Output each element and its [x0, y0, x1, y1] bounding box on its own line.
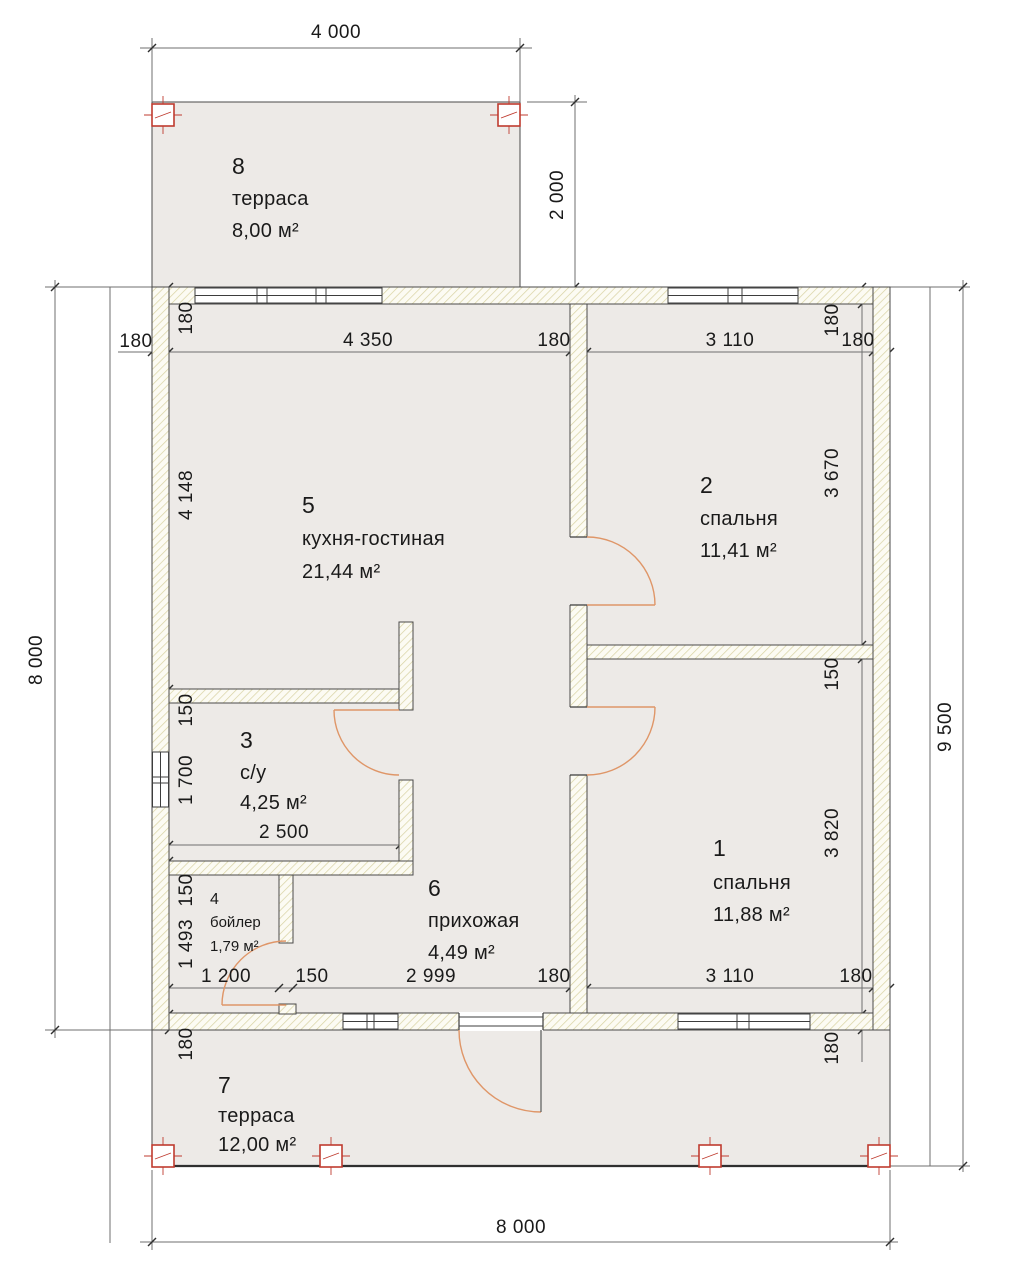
dim-terrace-top-width: 4 000 [311, 22, 361, 43]
room-name: прихожая [428, 910, 520, 932]
room-number: 2 [700, 472, 713, 498]
opening-entrance-door [459, 1012, 543, 1031]
dim-label: 1 493 [176, 919, 197, 969]
room-name: терраса [232, 188, 309, 210]
room-area: 11,41 м² [700, 540, 777, 562]
dim-label: 180 [841, 330, 874, 351]
opening-bedroom1-door [569, 707, 588, 775]
dim-right-total-height: 9 500 [935, 702, 956, 752]
dim-terrace-top-depth: 2 000 [547, 170, 568, 220]
room-number: 8 [232, 153, 245, 179]
dim-label: 180 [822, 1031, 843, 1064]
room-area: 12,00 м² [218, 1134, 296, 1156]
wall-kitchen-bathroom [169, 689, 413, 703]
room-area: 4,25 м² [240, 792, 307, 814]
room-number: 3 [240, 727, 253, 753]
dim-label: 3 670 [822, 448, 843, 498]
dim-house-bottom-width: 8 000 [496, 1217, 546, 1238]
room-number: 1 [713, 835, 726, 861]
room-area: 21,44 м² [302, 561, 380, 583]
dim-label: 150 [822, 657, 843, 690]
room-area: 4,49 м² [428, 942, 495, 964]
dim-label: 150 [176, 873, 197, 906]
room-name: спальня [700, 508, 778, 530]
dim-label: 180 [176, 301, 197, 334]
dim-label: 150 [176, 693, 197, 726]
wall-exterior-right [873, 287, 890, 1030]
floor-areas [152, 102, 890, 1166]
wall-central [570, 304, 587, 1013]
window-bedroom1-bottom [678, 1014, 810, 1029]
dim-label: 4 350 [343, 330, 393, 351]
floor-plan-page: 4 000 2 000 8 000 9 500 8 000 180 4 350 … [0, 0, 1021, 1280]
dim-label: 180 [839, 966, 872, 987]
window-hallway-bottom [343, 1014, 398, 1029]
wall-exterior-left [152, 287, 169, 1030]
room-number: 5 [302, 492, 315, 518]
room-name: кухня-гостиная [302, 528, 445, 550]
room-number: 6 [428, 875, 441, 901]
window-bedroom2-top [668, 288, 798, 303]
room-name: спальня [713, 872, 791, 894]
dim-label: 3 110 [706, 330, 755, 351]
dim-label: 180 [822, 303, 843, 336]
dim-label: 3 820 [822, 808, 843, 858]
dim-label: 2 999 [406, 966, 456, 987]
wall-bathroom-right-upper [399, 622, 413, 710]
window-kitchen-top [195, 288, 382, 303]
dim-label: 1 200 [201, 966, 251, 987]
opening-bedroom2-door [569, 537, 588, 605]
dim-label: 1 700 [176, 755, 197, 805]
window-bathroom-left [153, 752, 169, 807]
room-number: 4 [210, 891, 219, 908]
dim-label: 3 110 [706, 966, 755, 987]
wall-boiler-right [279, 875, 293, 943]
room-area: 8,00 м² [232, 220, 299, 242]
terrace-top-floor [152, 102, 520, 287]
floor-plan-drawing: 4 000 2 000 8 000 9 500 8 000 180 4 350 … [0, 0, 1021, 1280]
dim-house-left-height: 8 000 [26, 635, 47, 685]
dim-label: 180 [176, 1027, 197, 1060]
room-name: бойлер [210, 914, 261, 931]
wall-bathroom-bottom [169, 861, 413, 875]
room-number: 7 [218, 1072, 231, 1098]
wall-bedroom-divider [587, 645, 873, 659]
room-name: с/у [240, 762, 266, 784]
dim-label: 150 [295, 966, 328, 987]
dim-label: 4 148 [176, 470, 197, 520]
dim-label: 180 [537, 966, 570, 987]
dim-label: 180 [537, 330, 570, 351]
room-area: 1,79 м² [210, 938, 259, 955]
dim-bathroom-width: 2 500 [259, 822, 309, 843]
dim-label: 180 [119, 331, 152, 352]
room-area: 11,88 м² [713, 904, 790, 926]
room-name: терраса [218, 1105, 295, 1127]
